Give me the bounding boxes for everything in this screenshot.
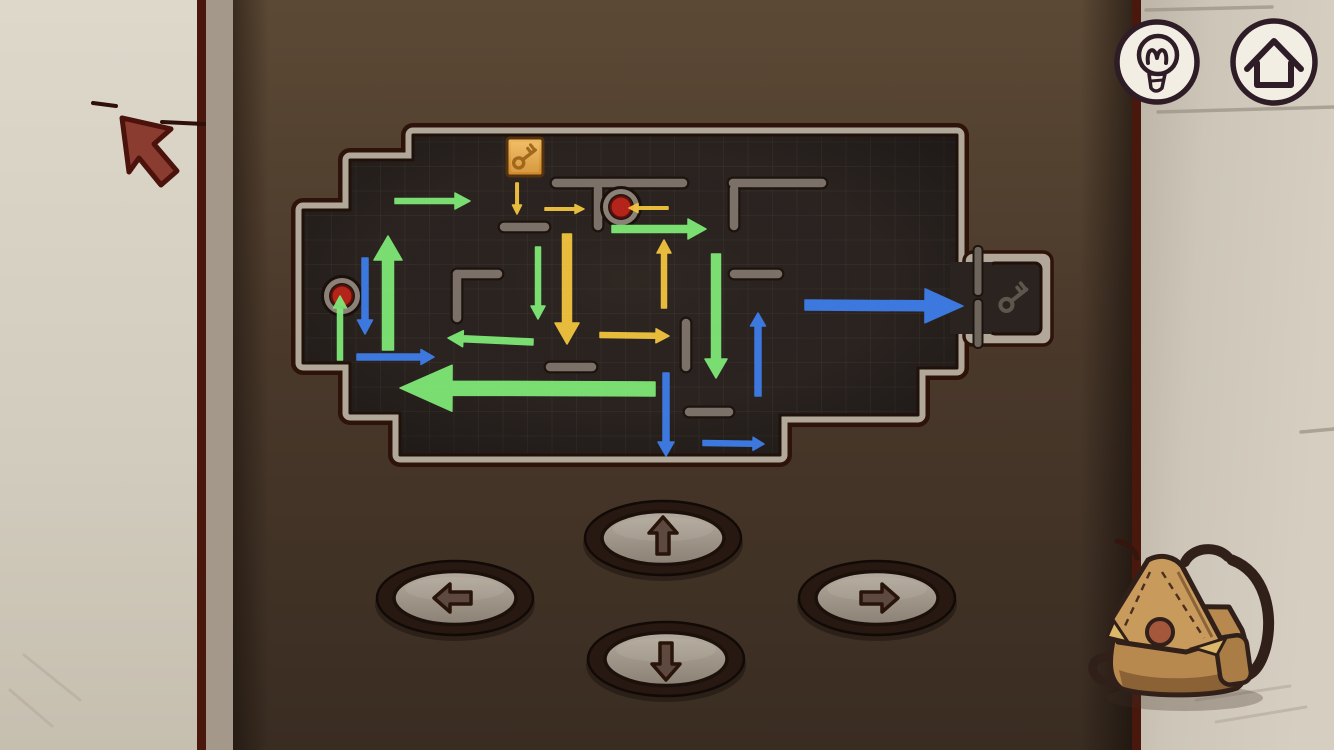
dpad-down-button[interactable] [586,622,746,702]
dpad-right-button[interactable] [797,561,957,641]
backpack-button [1147,619,1173,645]
exit-post [974,299,983,348]
dpad-left-button[interactable] [375,561,535,641]
exit-post [974,246,983,296]
home-button-circle [1233,21,1315,103]
hint-button[interactable] [1117,22,1197,102]
game-screen [0,0,1334,750]
left-wall-shadow-strip [206,0,233,750]
panel-left-shade [233,0,269,750]
key-tile [507,138,543,176]
exit-passage [950,262,992,334]
wall-mark [162,122,204,124]
left-stone-wall [0,0,206,750]
game-scene [0,0,1334,750]
exit-door [950,246,1052,348]
home-button[interactable] [1233,21,1315,103]
dpad-up-button[interactable] [583,501,743,581]
left-wall-seam [197,0,206,750]
